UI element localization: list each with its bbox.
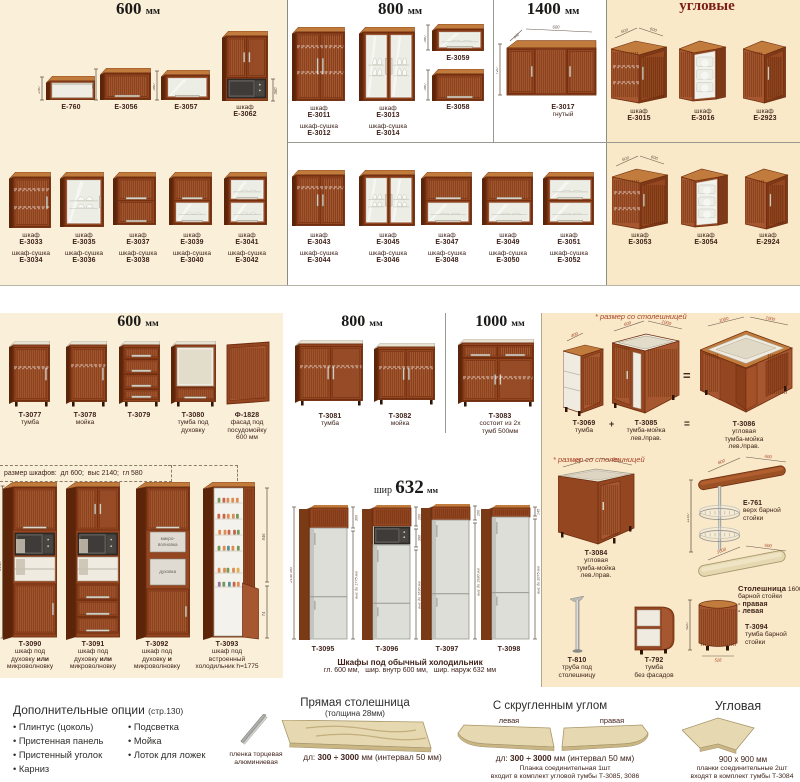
svg-text:820: 820: [686, 622, 689, 630]
svg-text:600: 600: [764, 543, 772, 549]
svg-text:360: 360: [424, 35, 427, 43]
svg-text:360: 360: [424, 83, 427, 91]
svg-text:200: 200: [477, 509, 481, 517]
svg-text:600: 600: [717, 458, 726, 465]
svg-text:1000: 1000: [661, 319, 672, 326]
svg-text:600: 600: [623, 320, 632, 327]
svg-text:360: 360: [92, 82, 95, 90]
svg-text:600: 600: [764, 454, 772, 460]
svg-text:360: 360: [355, 514, 359, 521]
svg-text:720: 720: [496, 67, 499, 75]
svg-text:440: 440: [513, 32, 521, 40]
svg-text:выс до 1775 мм: выс до 1775 мм: [355, 571, 359, 599]
svg-text:360: 360: [153, 83, 156, 91]
svg-text:528: 528: [715, 658, 723, 663]
svg-text:выс до 2075 мм: выс до 2075 мм: [537, 566, 541, 594]
svg-text:1000: 1000: [765, 315, 776, 322]
svg-text:1000: 1000: [718, 316, 729, 323]
svg-text:2140: 2140: [0, 561, 2, 572]
svg-text:145: 145: [537, 508, 541, 515]
svg-text:духовка: духовка: [159, 569, 176, 574]
svg-text:600: 600: [553, 25, 561, 30]
svg-text:2140 мм: 2140 мм: [290, 567, 293, 584]
svg-text:946: 946: [262, 533, 266, 541]
svg-text:400: 400: [570, 331, 579, 339]
svg-text:900: 900: [573, 457, 582, 464]
svg-text:600: 600: [621, 155, 630, 162]
svg-text:250: 250: [38, 86, 41, 95]
svg-text:900: 900: [612, 456, 621, 463]
svg-text:выс до 1930 мм: выс до 1930 мм: [477, 568, 481, 596]
svg-text:1600: 1600: [716, 546, 727, 554]
svg-text:волновка: волновка: [158, 542, 178, 547]
svg-text:600: 600: [620, 27, 629, 34]
svg-text:микро-: микро-: [161, 536, 176, 541]
svg-text:360: 360: [273, 87, 278, 95]
svg-text:1100: 1100: [687, 513, 690, 523]
svg-text:74: 74: [262, 611, 266, 616]
